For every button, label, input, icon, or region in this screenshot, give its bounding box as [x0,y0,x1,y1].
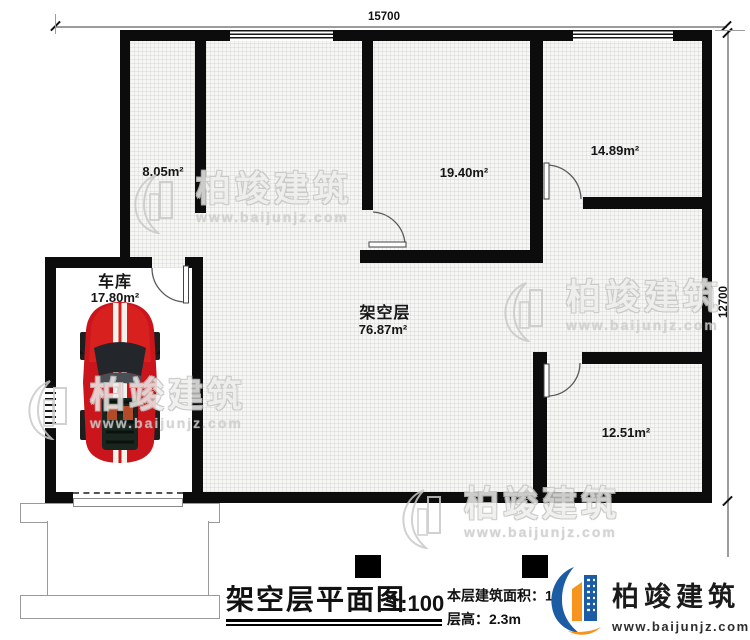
door-leaf-1940 [369,242,406,247]
dimension-line-top [55,26,727,28]
label-garage-area: 17.80m² [75,291,155,306]
brand-name: 柏竣建筑 [612,584,740,611]
label-room-1940: 19.40m² [424,166,504,181]
label-room-805: 8.05m² [123,165,203,180]
door-leaf-garage [184,266,189,303]
door-arc-1251 [546,363,580,396]
door-leaf-1489 [544,163,549,199]
car-windshield [94,342,146,376]
door-arc-1489 [546,165,581,199]
dim-ext-topright [715,30,745,31]
car-engine-detail-a [107,406,117,420]
floor-area-label: 本层建筑面积： [447,588,545,604]
dimension-top-value: 15700 [334,11,434,23]
label-room-1489: 14.89m² [575,144,655,159]
label-stilt-name: 架空层 [345,305,425,323]
plan-title: 架空层平面图 [226,586,406,614]
floor-height-line: 层高：2.3m [447,612,521,626]
plan-title-underline2 [226,624,442,626]
dimension-right-value: 12700 [718,273,730,331]
door-leaf-1251 [544,364,549,397]
door-arc-1940 [373,212,405,244]
dim-ext-topleft [55,14,56,34]
plan-title-underline [226,619,442,622]
column-marker-left [355,555,381,578]
door-arc-garage [152,268,186,302]
label-stilt-area: 76.87m² [343,323,423,338]
car-engine-detail-b [123,406,133,420]
plan-scale: 1:100 [388,593,444,615]
brand-logo-icon [546,563,608,637]
brand-logo-building-orange [572,582,582,621]
floor-plan-canvas: 8.05m² 19.40m² 14.89m² 车库 17.80m² 架空层 76… [0,0,750,640]
column-marker-right [522,555,548,578]
label-room-1251: 12.51m² [586,426,666,441]
brand-url: www.baijunjz.com [612,620,750,633]
car-top-view [80,302,160,464]
brand-logo-building-blue [584,575,597,621]
